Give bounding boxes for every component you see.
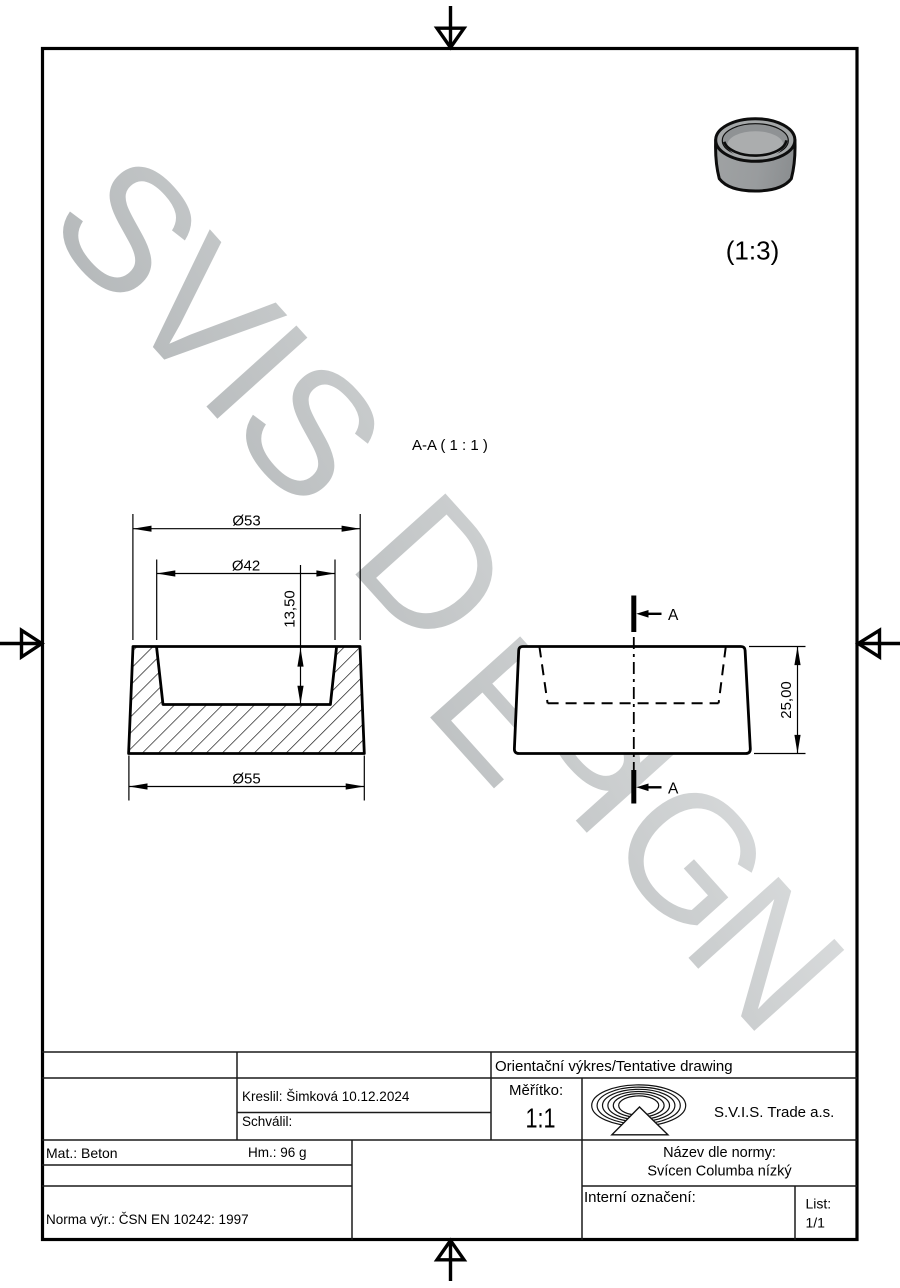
svg-text:Název dle normy:: Název dle normy: xyxy=(663,1145,776,1161)
svg-text:A: A xyxy=(668,780,679,797)
svg-text:Svícen Columba nízký: Svícen Columba nízký xyxy=(647,1164,792,1180)
svg-text:Schválil:: Schválil: xyxy=(242,1114,292,1129)
svg-text:25,00: 25,00 xyxy=(778,681,795,719)
svg-text:Ø55: Ø55 xyxy=(232,770,260,787)
svg-text:Orientační výkres/Tentative dr: Orientační výkres/Tentative drawing xyxy=(495,1058,733,1075)
svg-text:1/1: 1/1 xyxy=(806,1215,826,1231)
svg-text:Mat.: Beton: Mat.: Beton xyxy=(46,1145,118,1161)
svg-text:1:1: 1:1 xyxy=(526,1103,556,1134)
svg-text:List:: List: xyxy=(806,1196,832,1212)
svg-text:Norma výr.: ČSN EN 10242: 1997: Norma výr.: ČSN EN 10242: 1997 xyxy=(46,1212,249,1227)
svg-text:Interní označení:: Interní označení: xyxy=(584,1189,696,1206)
svg-text:(1:3): (1:3) xyxy=(726,236,779,266)
svg-text:Ø53: Ø53 xyxy=(232,513,260,530)
svg-text:Hm.: 96 g: Hm.: 96 g xyxy=(248,1145,307,1160)
svg-text:13,50: 13,50 xyxy=(282,590,299,628)
svg-text:Kreslil: Šimková 10.12.2024: Kreslil: Šimková 10.12.2024 xyxy=(242,1089,410,1104)
svg-text:Ø42: Ø42 xyxy=(232,557,260,574)
svg-text:A: A xyxy=(668,607,679,624)
svg-text:Měřítko:: Měřítko: xyxy=(509,1082,563,1099)
svg-text:S.V.I.S. Trade a.s.: S.V.I.S. Trade a.s. xyxy=(714,1104,834,1121)
svg-text:A-A ( 1 : 1 ): A-A ( 1 : 1 ) xyxy=(412,437,488,454)
